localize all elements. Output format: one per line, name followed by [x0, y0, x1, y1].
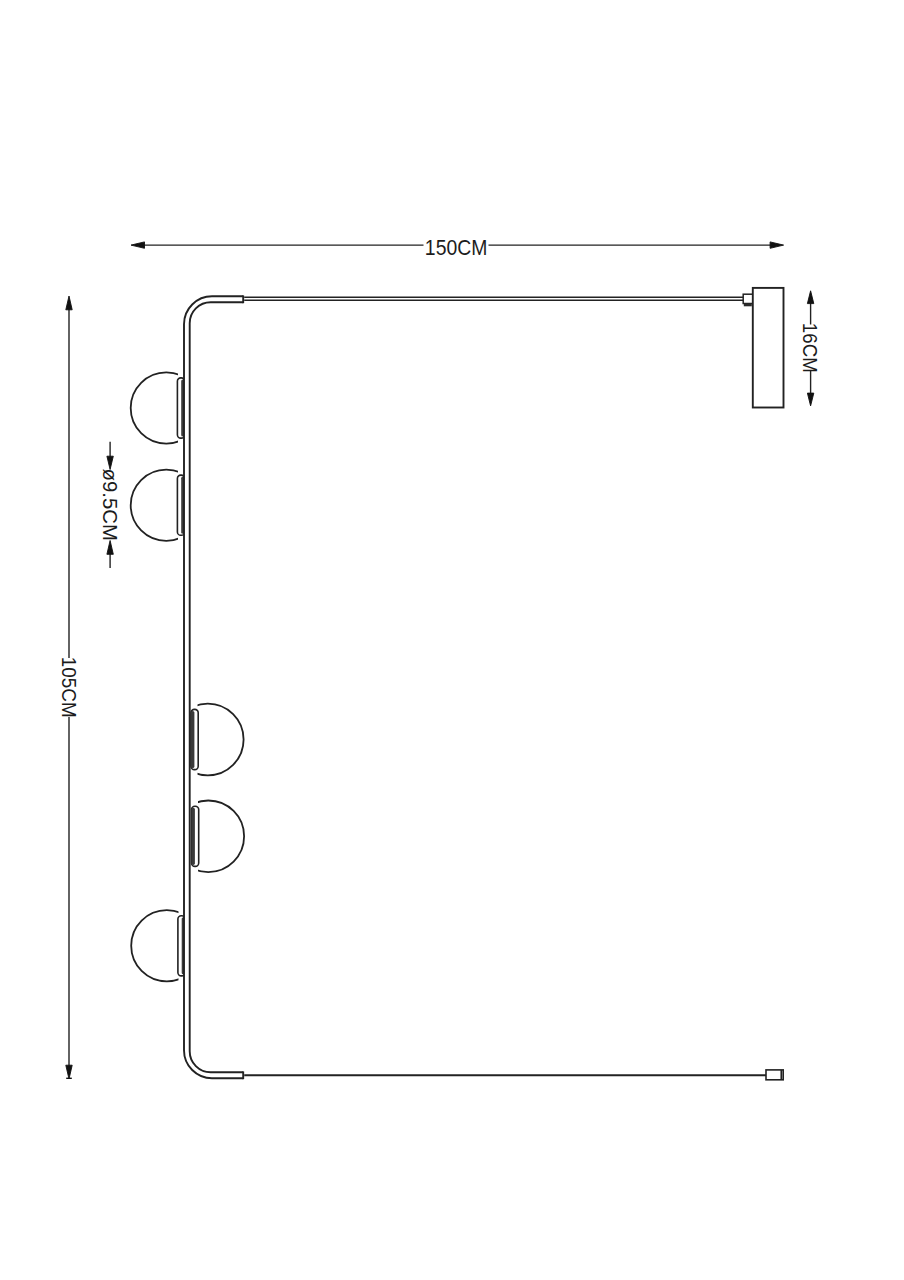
svg-text:ø9.5CM: ø9.5CM [99, 468, 121, 541]
svg-text:105CM: 105CM [58, 657, 80, 718]
svg-text:150CM: 150CM [425, 235, 488, 260]
svg-text:16CM: 16CM [799, 323, 821, 373]
